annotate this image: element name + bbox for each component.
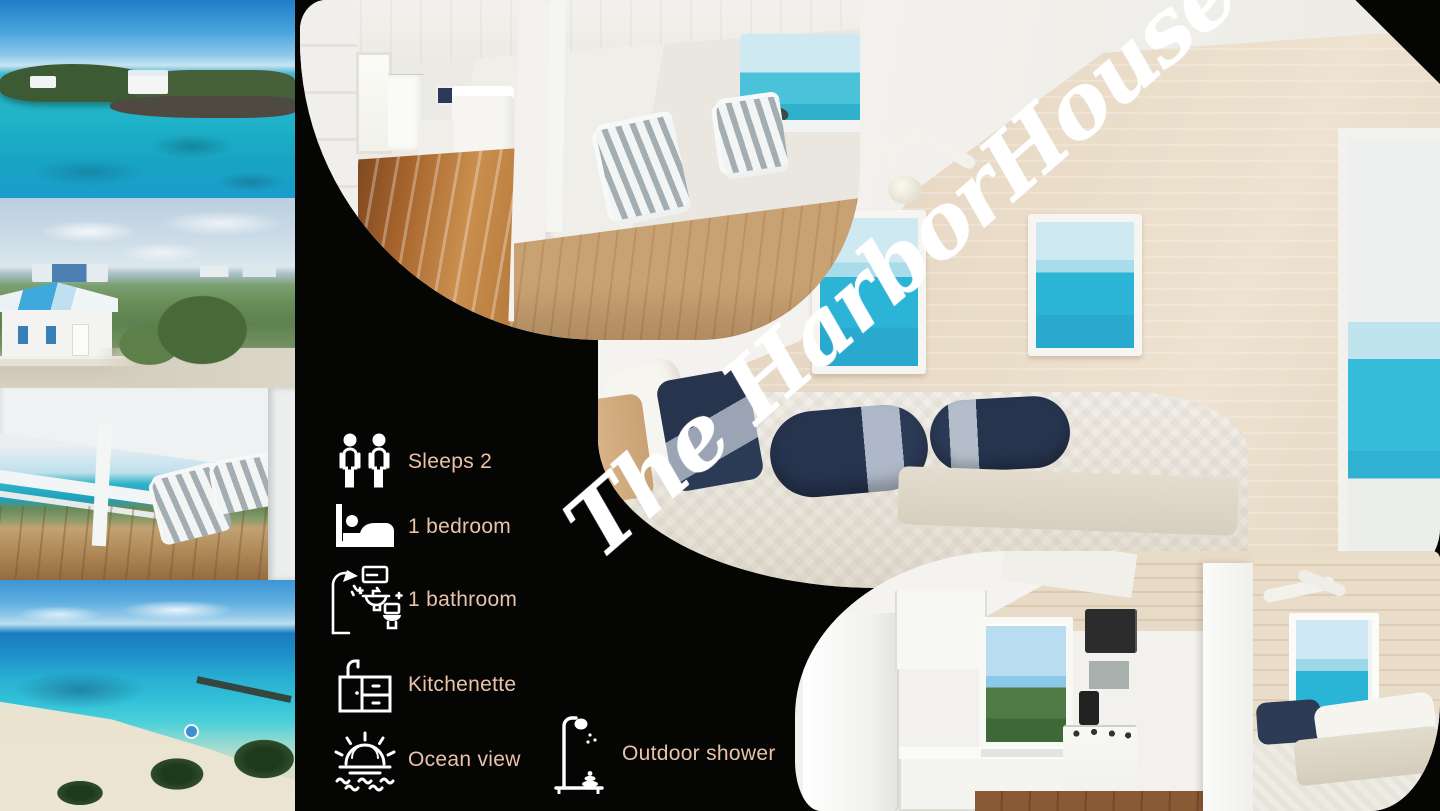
- porch-post: [546, 0, 566, 232]
- amenity-label: Outdoor shower: [622, 742, 776, 766]
- open-door-ocean-view: [1338, 128, 1440, 588]
- photo-porch-deck: [0, 388, 295, 580]
- bed: [452, 86, 514, 158]
- folded-blanket: [897, 466, 1239, 536]
- rocky-shore: [110, 96, 295, 118]
- amenity-kitchenette: Kitchenette: [322, 654, 516, 716]
- blue-shutter-window: [46, 326, 56, 344]
- fridge: [803, 613, 899, 811]
- kitchenette-icon: [322, 655, 408, 715]
- hallway-door: [356, 52, 392, 154]
- distant-roofs: [200, 266, 295, 277]
- deck-planks: [0, 506, 272, 580]
- beach-umbrella: [186, 726, 197, 737]
- palm-canopy: [140, 752, 214, 796]
- amenity-ocean-view: Ocean view: [322, 727, 521, 793]
- amenity-label: Ocean view: [408, 748, 521, 772]
- amenity-sleeps: Sleeps 2: [322, 430, 492, 494]
- clouds: [0, 588, 295, 632]
- ocean-view-icon: [322, 728, 408, 792]
- reef-shadows: [0, 118, 295, 198]
- kitchen-window: [979, 617, 1073, 749]
- photo-cottage-exterior: [0, 198, 295, 388]
- solar-roof: [32, 264, 108, 282]
- rocking-chair: [595, 115, 690, 221]
- amenity-label: Kitchenette: [408, 673, 516, 697]
- palm-canopy: [48, 776, 112, 810]
- rocking-chair: [715, 96, 788, 174]
- listing-photo-collage: The HarborHouse Sleeps 2 1 bedr: [0, 0, 1440, 811]
- wood-floor: [358, 148, 520, 340]
- panel-wall: [300, 0, 358, 340]
- photo-island-cove: [0, 0, 295, 198]
- palm-canopy: [222, 732, 295, 786]
- bed-icon: [322, 504, 408, 550]
- distant-house: [30, 76, 56, 88]
- rolled-navy-towel: [928, 394, 1072, 473]
- outdoor-shower-icon: [548, 714, 622, 794]
- blue-shutter-window: [18, 326, 28, 344]
- white-cottage: [128, 70, 168, 94]
- upper-cabinets: [895, 591, 987, 669]
- shelf: [1089, 661, 1129, 689]
- amenity-label: 1 bedroom: [408, 515, 511, 539]
- amenity-outdoor-shower: Outdoor shower: [548, 712, 776, 796]
- two-guests-icon: [322, 431, 408, 493]
- jetty: [196, 676, 291, 703]
- amenity-label: 1 bathroom: [408, 588, 517, 612]
- house-wall: [268, 388, 295, 580]
- microwave: [1085, 609, 1137, 653]
- photo-kitchenette: [795, 551, 1440, 811]
- amenity-bathroom: 1 bathroom: [322, 564, 517, 636]
- bathroom-icon: [322, 565, 408, 635]
- coffee-maker: [1079, 691, 1099, 725]
- partition-wall: [1203, 563, 1253, 811]
- amenity-bedroom: 1 bedroom: [322, 502, 511, 552]
- photo-beach-aerial: [0, 580, 295, 811]
- green-tree: [100, 282, 265, 378]
- amenity-label: Sleeps 2: [408, 450, 492, 474]
